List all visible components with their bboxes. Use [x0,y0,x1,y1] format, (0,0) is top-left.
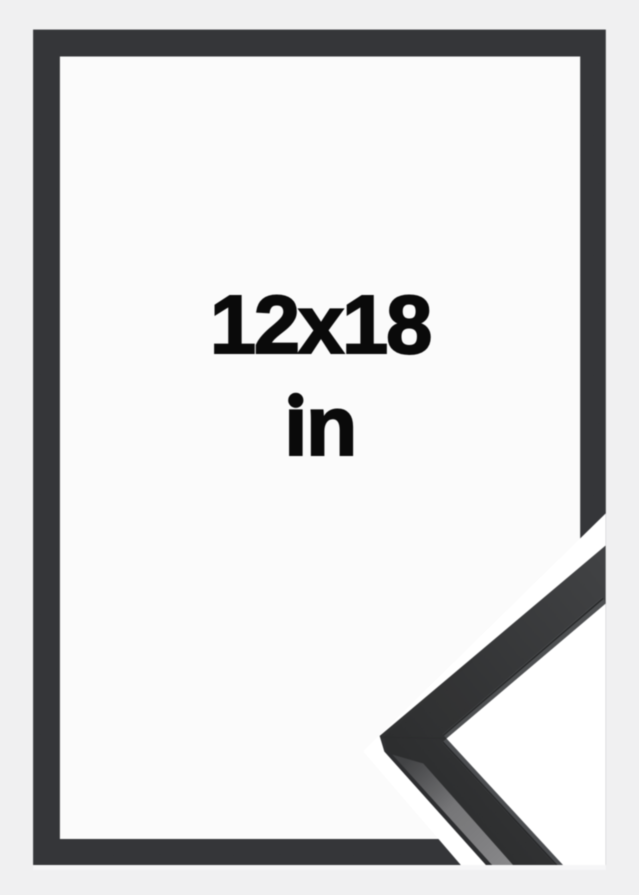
svg-text:12x18: 12x18 [210,278,430,371]
